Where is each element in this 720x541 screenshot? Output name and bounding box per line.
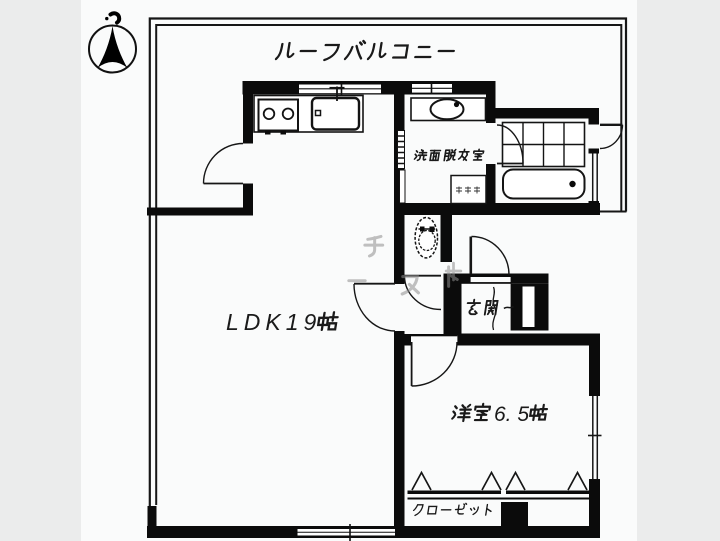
svg-text:6. 5: 6. 5 <box>494 403 529 426</box>
svg-text:LDK19: LDK19 <box>226 309 321 335</box>
